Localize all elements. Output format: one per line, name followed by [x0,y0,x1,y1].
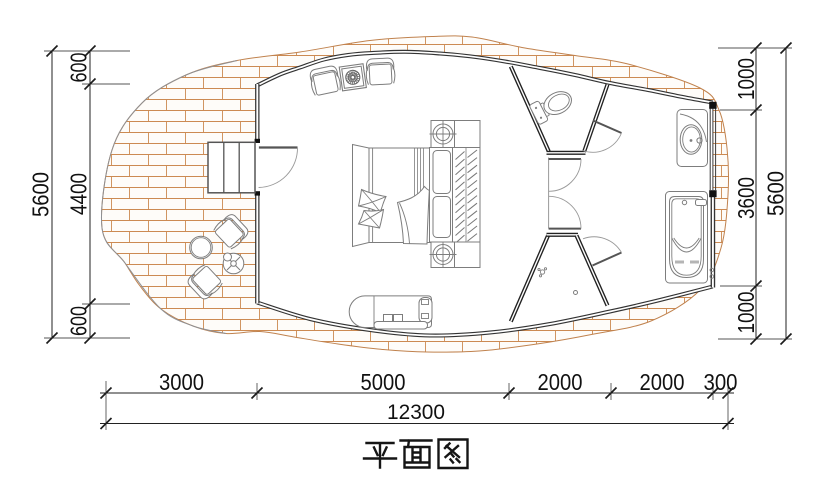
svg-text:5600: 5600 [763,171,789,216]
svg-text:5000: 5000 [361,369,406,395]
svg-text:2000: 2000 [538,369,583,395]
svg-text:600: 600 [66,306,92,336]
svg-text:300: 300 [704,369,738,395]
svg-text:4400: 4400 [66,173,92,215]
svg-text:3600: 3600 [733,177,759,219]
svg-text:1000: 1000 [733,292,759,334]
svg-text:1000: 1000 [733,58,759,100]
svg-text:12300: 12300 [387,401,445,424]
svg-text:5600: 5600 [28,172,54,217]
svg-text:600: 600 [66,53,92,83]
svg-text:3000: 3000 [159,369,204,395]
svg-text:2000: 2000 [640,369,685,395]
